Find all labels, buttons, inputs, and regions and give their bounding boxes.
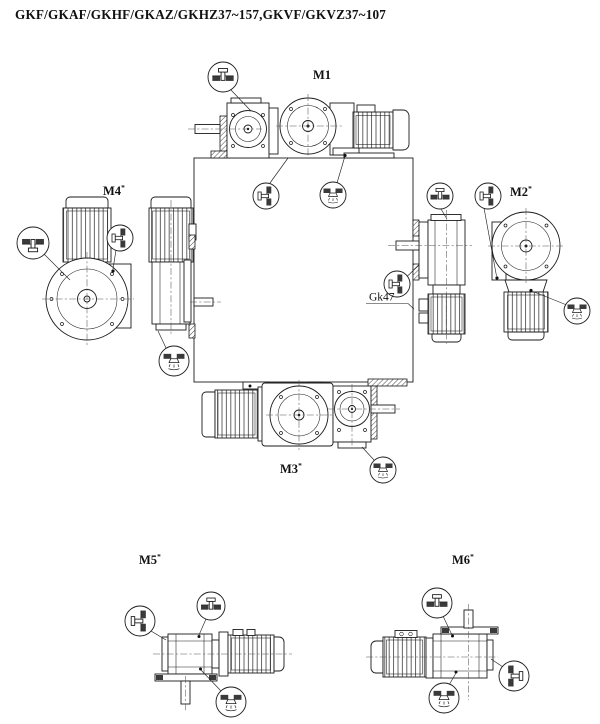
terminal-box — [395, 631, 417, 638]
gearmotor-m6 — [366, 604, 498, 700]
position-label-m4: M4* — [103, 183, 125, 198]
wall-pad — [189, 324, 195, 338]
gearmotor-m1-front-view — [276, 94, 409, 158]
ceiling-strip — [368, 379, 407, 386]
detail-balloon-vent-m4 — [17, 227, 70, 280]
wall-pad — [413, 264, 419, 280]
leader-line — [158, 331, 167, 350]
mounting-flange — [419, 222, 428, 278]
leader-line — [362, 447, 374, 460]
mounting-surface-square — [194, 158, 413, 382]
position-label-m2: M2* — [510, 184, 532, 199]
mounting-position-diagram: GKF/GKAF/GKHF/GKAZ/GKHZ37~157,GKVF/GKVZ3… — [0, 0, 600, 724]
position-label-m1: M1 — [313, 68, 331, 82]
motor-body — [353, 112, 393, 148]
gearmotor-m3-side-view — [328, 384, 400, 448]
position-m6: M6* — [366, 552, 529, 713]
terminal-box — [233, 630, 243, 636]
position-m2: M2* — [388, 183, 590, 345]
fan-cowl — [393, 110, 409, 150]
gearmotor-m1-side-view — [188, 98, 278, 158]
gearmotor-m4-side-view — [149, 197, 221, 338]
gk47-label: Gk47 — [369, 292, 395, 304]
detail-balloon-vent-m2 — [427, 183, 453, 219]
leader-line — [270, 158, 288, 183]
detail-balloon-level-m1 — [253, 158, 288, 209]
detail-balloon-drain-m3 — [362, 447, 396, 483]
wall-pad — [189, 235, 195, 249]
position-label-m6: M6* — [452, 552, 474, 567]
detail-balloon-drain-m6 — [429, 673, 459, 713]
leader-line — [151, 631, 166, 640]
fan-cowl — [202, 392, 215, 437]
detail-balloon-level-m6 — [491, 659, 529, 691]
detail-balloon-drain-m5 — [201, 670, 246, 717]
gearmotor-m3-front-view — [202, 380, 333, 450]
motor-body — [215, 390, 258, 438]
detail-balloon-vent-m5 — [197, 592, 225, 635]
callout-gk47: Gk47 — [366, 265, 419, 309]
mounting-flange — [184, 260, 191, 322]
gearmotor-m4-front-view — [42, 197, 134, 345]
position-label-m3: M3* — [280, 461, 302, 476]
wall-pad — [413, 220, 419, 236]
page-title: GKF/GKAF/GKHF/GKAZ/GKHZ37~157,GKVF/GKVZ3… — [15, 7, 386, 22]
motor-cap — [508, 332, 544, 340]
position-label-m5: M5* — [139, 552, 161, 567]
leader-line — [337, 156, 345, 183]
detail-balloon-drain-m4 — [158, 331, 189, 376]
motor-cap — [66, 197, 108, 208]
gearmotor-m2-front-view — [488, 208, 564, 340]
position-m5: M5* — [125, 552, 292, 717]
foot-pad — [211, 151, 227, 158]
detail-balloon-drain-m1 — [320, 156, 346, 208]
leader-line — [199, 619, 206, 635]
position-m3: M3* — [202, 379, 407, 483]
detail-balloon-level-m5 — [125, 606, 166, 640]
terminal-box — [357, 105, 375, 112]
motor-body — [504, 292, 548, 332]
position-m1: M1 — [188, 62, 409, 209]
terminal-box — [419, 299, 428, 311]
position-m4: M4* — [17, 183, 221, 376]
